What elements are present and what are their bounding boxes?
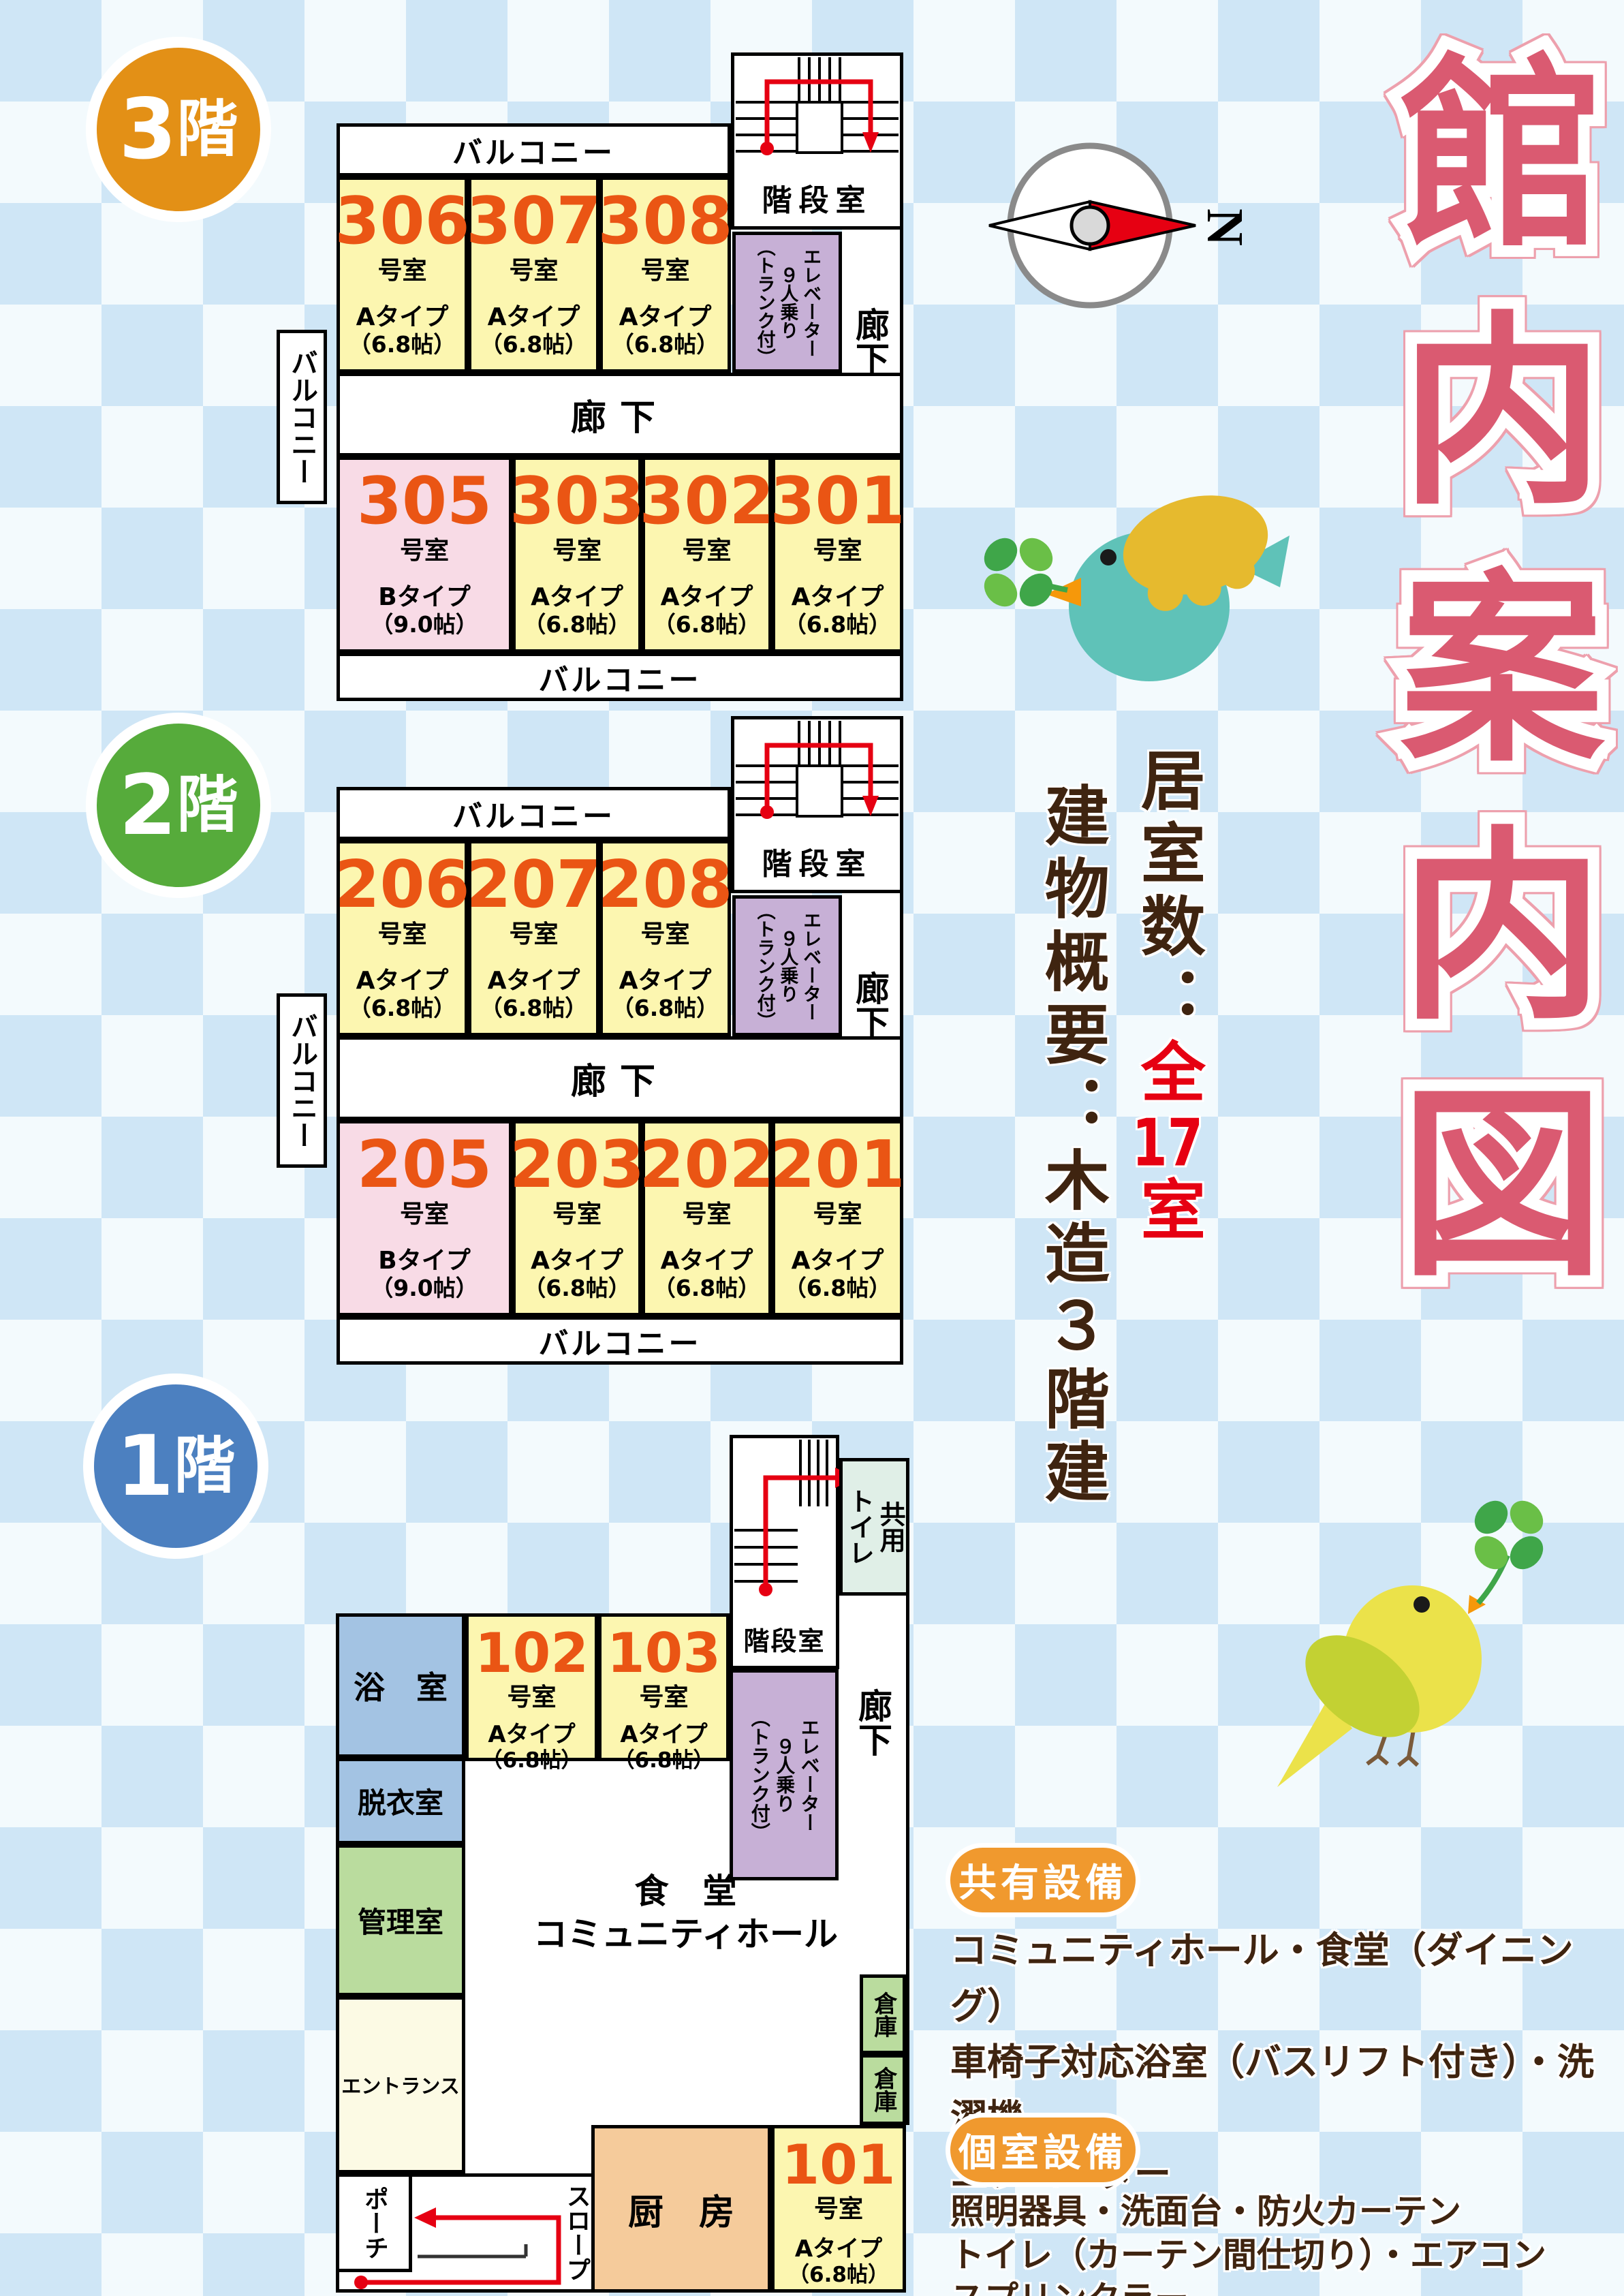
- f3-stairwell-label: 階段室: [734, 176, 900, 219]
- f1-shared-toilet-label: 共用 トイレ: [843, 1488, 905, 1566]
- f1-storage-2: 倉庫: [860, 2054, 906, 2125]
- f3-elevator-l2: ９人乗り: [776, 238, 799, 367]
- room-203-num: 203: [510, 1133, 644, 1198]
- room-101: 101 号室 Aタイプ （6.8帖）: [771, 2125, 906, 2293]
- badge-floor-3: 3 階: [86, 37, 271, 222]
- f1-office: 管理室: [336, 1844, 465, 1996]
- room-205: 205 号室 Bタイプ （9.0帖）: [337, 1120, 512, 1316]
- room-201-size: （6.8帖）: [784, 1276, 891, 1301]
- room-203-type: Aタイプ: [531, 1247, 623, 1275]
- overview-rooms-count: 居室数：全17室: [1133, 747, 1201, 1249]
- f3-elevator-l1: エレベーター: [798, 238, 822, 367]
- badge-floor-2: 2 階: [86, 713, 271, 898]
- room-305: 305 号室 Bタイプ （9.0帖）: [337, 456, 512, 653]
- room-302-type: Aタイプ: [661, 584, 753, 611]
- room-202-num: 202: [639, 1133, 774, 1198]
- f2-elevator-l1: エレベーター: [798, 901, 822, 1030]
- room-305-suffix: 号室: [400, 536, 449, 566]
- f3-elevator: エレベーター ９人乗り （トランク付）: [732, 232, 842, 373]
- room-301-suffix: 号室: [813, 536, 862, 566]
- room-308: 308 号室 Aタイプ （6.8帖）: [599, 176, 731, 373]
- room-103: 103 号室 Aタイプ （6.8帖）: [598, 1613, 730, 1761]
- room-203-suffix: 号室: [552, 1199, 602, 1230]
- f2-stairwell: 階段室: [731, 716, 903, 893]
- f3-balcony-bottom-label: バルコニー: [538, 655, 701, 699]
- f1-kitchen: 厨 房: [591, 2125, 771, 2293]
- f1-dining-l1: 食 堂: [465, 1870, 906, 1913]
- room-102-size: （6.8帖）: [482, 1749, 582, 1772]
- room-202-type: Aタイプ: [661, 1247, 753, 1275]
- room-303-type: Aタイプ: [531, 584, 623, 611]
- f2-corridor-band: 廊下: [337, 1036, 903, 1120]
- room-308-size: （6.8帖）: [612, 332, 719, 357]
- f2-elevator-l3: （トランク付）: [753, 901, 776, 1030]
- f3-balcony-left: バルコニー: [277, 330, 327, 504]
- room-308-num: 308: [597, 189, 732, 254]
- f2-balcony-left-label: バルコニー: [287, 1012, 317, 1149]
- f3-balcony-top-label: バルコニー: [452, 128, 615, 172]
- poster-title-wrap: 館内案内図: [1381, 46, 1586, 1334]
- f3-elevator-label: エレベーター ９人乗り （トランク付）: [753, 238, 822, 367]
- floor-guide-poster: 館内案内図 N 3 階 2 階 1 階 階段室: [0, 0, 1624, 2296]
- f3-balcony-left-label: バルコニー: [287, 349, 317, 485]
- overview-rooms-head: 全: [1130, 1038, 1205, 1111]
- room-302-size: （6.8帖）: [653, 612, 760, 637]
- room-202-suffix: 号室: [682, 1199, 731, 1230]
- f3-corridor-band: 廊下: [337, 373, 903, 456]
- room-102-num: 102: [475, 1626, 589, 1681]
- room-206-size: （6.8帖）: [349, 996, 456, 1021]
- overview-rooms-num: 17: [1130, 1111, 1205, 1176]
- room-101-size: （6.8帖）: [788, 2263, 889, 2286]
- room-303-size: （6.8帖）: [523, 612, 630, 637]
- room-306-type: Aタイプ: [356, 304, 449, 331]
- f1-shared-toilet: 共用 トイレ: [839, 1458, 909, 1596]
- room-202-size: （6.8帖）: [653, 1276, 760, 1301]
- room-103-size: （6.8帖）: [614, 1749, 715, 1772]
- room-201: 201 号室 Aタイプ （6.8帖）: [772, 1120, 903, 1316]
- badge-3-num: 3: [119, 88, 177, 171]
- f2-balcony-top: バルコニー: [337, 787, 731, 840]
- f1-kitchen-label: 厨 房: [628, 2184, 734, 2235]
- room-205-type: Bタイプ: [378, 1247, 470, 1275]
- room-207-num: 207: [466, 853, 601, 918]
- f1-dressing-label: 脱衣室: [358, 1780, 443, 1822]
- private-facilities-list: 照明器具・洗面台・防火カーテン トイレ（カーテン間仕切り）・エアコン スプリンク…: [950, 2192, 1618, 2296]
- room-305-num: 305: [357, 469, 492, 534]
- room-203: 203 号室 Aタイプ （6.8帖）: [512, 1120, 642, 1316]
- f1-entrance: エントランス: [336, 1996, 465, 2173]
- f3-balcony-bottom: バルコニー: [337, 653, 903, 701]
- bluebird-clover-icon: [950, 477, 1298, 702]
- room-207: 207 号室 Aタイプ （6.8帖）: [468, 840, 599, 1036]
- f1-bath: 浴 室: [336, 1613, 465, 1758]
- f2-elevator-label: エレベーター ９人乗り （トランク付）: [753, 901, 822, 1030]
- shared-facility-line-1: コミュニティホール・食堂（ダイニング）: [950, 1923, 1618, 2034]
- f1-slope-path-icon: [336, 2173, 591, 2293]
- room-301-num: 301: [770, 469, 905, 534]
- room-206-suffix: 号室: [377, 919, 426, 950]
- room-208: 208 号室 Aタイプ （6.8帖）: [599, 840, 731, 1036]
- badge-2-num: 2: [119, 764, 177, 847]
- room-308-suffix: 号室: [640, 255, 689, 286]
- badge-1-num: 1: [116, 1425, 174, 1508]
- poster-title: 館内案内図: [1381, 46, 1586, 1334]
- room-207-suffix: 号室: [509, 919, 558, 950]
- room-306-size: （6.8帖）: [349, 332, 456, 357]
- private-facility-line-1: 照明器具・洗面台・防火カーテン: [950, 2192, 1618, 2231]
- room-308-type: Aタイプ: [619, 304, 712, 331]
- badge-2-kanji: 階: [176, 775, 238, 836]
- f3-corridor-right-label: 廊下: [851, 307, 888, 375]
- room-102-suffix: 号室: [507, 1682, 556, 1713]
- f1-elevator-label: エレベーター ９人乗り （トランク付）: [747, 1708, 821, 1842]
- room-306-suffix: 号室: [377, 255, 426, 286]
- room-302: 302 号室 Aタイプ （6.8帖）: [642, 456, 772, 653]
- f1-open-floor: [465, 2125, 591, 2177]
- f2-balcony-bottom: バルコニー: [337, 1316, 903, 1365]
- room-206-type: Aタイプ: [356, 967, 449, 995]
- overview-building: 建物概要：木造３階建: [1037, 782, 1105, 1511]
- room-208-suffix: 号室: [640, 919, 689, 950]
- f1-elevator-l2: ９人乗り: [772, 1708, 796, 1842]
- f2-balcony-bottom-label: バルコニー: [538, 1319, 701, 1363]
- room-306-num: 306: [334, 189, 469, 254]
- f1-stairwell-label: 階段室: [733, 1620, 836, 1658]
- f1-slope-label: スロープ: [563, 2184, 590, 2282]
- room-303: 303 号室 Aタイプ （6.8帖）: [512, 456, 642, 653]
- room-103-suffix: 号室: [639, 1682, 688, 1713]
- room-201-num: 201: [770, 1133, 905, 1198]
- f1-entrance-label: エントランス: [341, 2070, 459, 2099]
- room-101-type: Aタイプ: [795, 2237, 882, 2262]
- f3-balcony-top: バルコニー: [337, 123, 731, 176]
- room-305-type: Bタイプ: [378, 584, 470, 611]
- room-206-num: 206: [334, 853, 469, 918]
- room-307: 307 号室 Aタイプ （6.8帖）: [468, 176, 599, 373]
- f1-toilet-col1: 共用: [875, 1488, 906, 1566]
- room-208-type: Aタイプ: [619, 967, 712, 995]
- f2-corridor-right-label: 廊下: [851, 971, 888, 1039]
- room-207-type: Aタイプ: [488, 967, 580, 995]
- room-201-type: Aタイプ: [792, 1247, 884, 1275]
- room-307-num: 307: [466, 189, 601, 254]
- f2-elevator: エレベーター ９人乗り （トランク付）: [732, 895, 842, 1036]
- f1-stairwell: 階段室: [730, 1435, 839, 1669]
- room-301-size: （6.8帖）: [784, 612, 891, 637]
- room-306: 306 号室 Aタイプ （6.8帖）: [337, 176, 468, 373]
- private-facility-line-3: スプリンクラー: [950, 2280, 1618, 2296]
- f2-stairwell-label: 階段室: [734, 839, 900, 883]
- badge-3-kanji: 階: [176, 99, 238, 160]
- room-303-suffix: 号室: [552, 536, 602, 566]
- room-303-num: 303: [510, 469, 644, 534]
- room-307-suffix: 号室: [509, 255, 558, 286]
- yellowbird-clover-icon: [1270, 1475, 1570, 1795]
- f1-storage-1-label: 倉庫: [870, 1991, 895, 2038]
- badge-1-kanji: 階: [174, 1436, 235, 1497]
- room-206: 206 号室 Aタイプ （6.8帖）: [337, 840, 468, 1036]
- room-203-size: （6.8帖）: [523, 1276, 630, 1301]
- compass-north-label: N: [1195, 208, 1254, 246]
- room-102: 102 号室 Aタイプ （6.8帖）: [465, 1613, 598, 1761]
- f1-storage-2-label: 倉庫: [870, 2066, 895, 2113]
- overview-rooms-label: 居室数：: [1130, 747, 1205, 1038]
- f3-corridor-band-label: 廊下: [571, 389, 669, 440]
- room-102-type: Aタイプ: [488, 1722, 575, 1748]
- room-205-size: （9.0帖）: [371, 1276, 478, 1301]
- f2-balcony-top-label: バルコニー: [452, 792, 615, 835]
- shared-facilities-title: 共有設備: [958, 1852, 1127, 1908]
- f1-elevator-l3: （トランク付）: [747, 1708, 771, 1842]
- room-208-num: 208: [597, 853, 732, 918]
- f2-balcony-left: バルコニー: [277, 993, 327, 1168]
- room-205-suffix: 号室: [400, 1199, 449, 1230]
- overview-rooms-tail: 室: [1130, 1176, 1205, 1249]
- room-205-num: 205: [357, 1133, 492, 1198]
- room-201-suffix: 号室: [813, 1199, 862, 1230]
- room-302-num: 302: [639, 469, 774, 534]
- f1-bath-label: 浴 室: [354, 1663, 448, 1708]
- room-307-size: （6.8帖）: [480, 332, 587, 357]
- f1-dressing-room: 脱衣室: [336, 1758, 465, 1844]
- room-208-size: （6.8帖）: [612, 996, 719, 1021]
- badge-floor-1: 1 階: [83, 1374, 268, 1559]
- room-307-type: Aタイプ: [488, 304, 580, 331]
- f3-elevator-l3: （トランク付）: [753, 238, 776, 367]
- room-301: 301 号室 Aタイプ （6.8帖）: [772, 456, 903, 653]
- room-101-suffix: 号室: [814, 2194, 863, 2224]
- f1-corridor-label: 廊下: [854, 1688, 891, 1756]
- shared-facilities-pill: 共有設備: [950, 1848, 1136, 1912]
- f1-elevator: エレベーター ９人乗り （トランク付）: [730, 1669, 839, 1880]
- f2-corridor-band-label: 廊下: [571, 1053, 669, 1104]
- room-305-size: （9.0帖）: [371, 612, 478, 637]
- private-facilities-pill: 個室設備: [950, 2117, 1136, 2182]
- room-301-type: Aタイプ: [792, 584, 884, 611]
- room-207-size: （6.8帖）: [480, 996, 587, 1021]
- f3-stairwell: 階段室: [731, 52, 903, 230]
- f2-elevator-l2: ９人乗り: [776, 901, 799, 1030]
- room-202: 202 号室 Aタイプ （6.8帖）: [642, 1120, 772, 1316]
- f1-office-label: 管理室: [358, 1899, 443, 1941]
- room-103-num: 103: [607, 1626, 721, 1681]
- f1-toilet-col2: トイレ: [843, 1488, 875, 1566]
- room-103-type: Aタイプ: [620, 1722, 707, 1748]
- room-101-num: 101: [782, 2138, 896, 2192]
- room-302-suffix: 号室: [682, 536, 731, 566]
- private-facilities-title: 個室設備: [958, 2122, 1127, 2177]
- private-facility-line-2: トイレ（カーテン間仕切り）・エアコン: [950, 2236, 1618, 2274]
- f1-storage-1: 倉庫: [860, 1974, 906, 2054]
- f1-dining-l2: コミュニティホール: [465, 1913, 906, 1956]
- f1-elevator-l1: エレベーター: [796, 1708, 821, 1842]
- f1-dining-label: 食 堂 コミュニティホール: [465, 1870, 906, 1955]
